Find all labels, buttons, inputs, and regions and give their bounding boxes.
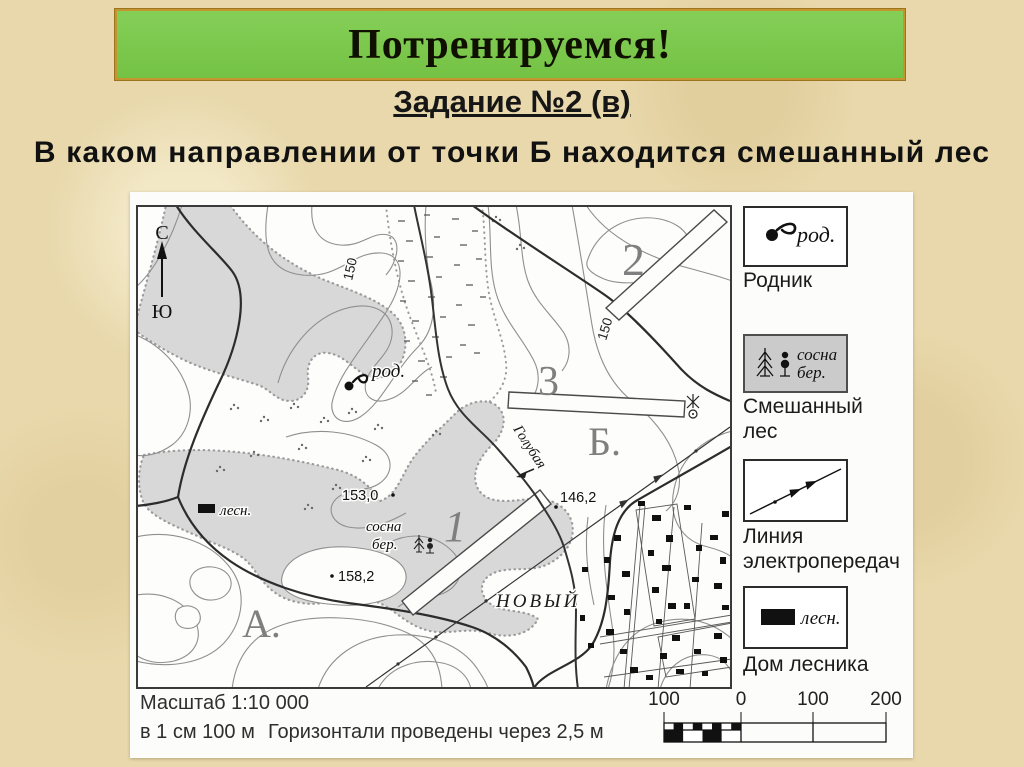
topographic-map: С Ю 150 150 род. 153,0 146,2 158,2 сосна… (136, 205, 732, 689)
scalebar-label-3: 200 (870, 689, 902, 710)
legend-mixed-forest-box: сосна бер. (743, 334, 848, 393)
scalebar-label-1: 0 (736, 689, 747, 710)
forester-house-symbol (198, 504, 215, 513)
compass-south-label: Ю (152, 301, 173, 323)
legend-forester-house-caption: Дом лесника (743, 652, 918, 677)
title-banner: Потренируемся! (115, 9, 905, 80)
marker-3: 3 (538, 359, 559, 405)
mixed-forest-legend-icon: сосна бер. (745, 336, 846, 391)
scalebar-label-0: 100 (648, 689, 680, 710)
legend-mixed-forest-caption: Смешанный лес (743, 394, 863, 444)
worksheet-panel: С Ю 150 150 род. 153,0 146,2 158,2 сосна… (130, 192, 913, 758)
birch-label: бер. (372, 537, 397, 553)
pine-label: сосна (366, 519, 401, 535)
legend-pine-label: сосна (797, 345, 837, 364)
legend-spring-caption: Родник (743, 268, 812, 293)
legend-birch-label: бер. (797, 363, 826, 382)
scale-cm-note: в 1 см 100 м (140, 721, 255, 744)
height-153-label: 153,0 (342, 488, 378, 504)
map-canvas: С Ю 150 150 род. 153,0 146,2 158,2 сосна… (136, 205, 732, 689)
marker-1: 1 (444, 502, 466, 551)
spot-153-dot (391, 493, 395, 497)
compass-north-label: С (155, 222, 168, 244)
legend-forester-house-box: лесн. (743, 586, 848, 649)
spring-legend-icon: род. (745, 208, 846, 265)
spring-symbol-label: род. (795, 222, 835, 247)
scalebar-label-2: 100 (797, 689, 829, 710)
legend-power-line-caption: Линия электропередач (743, 524, 918, 574)
legend-power-line-box (743, 459, 848, 522)
forester-map-label: лесн. (219, 503, 251, 519)
spot-146-dot (554, 505, 558, 509)
scalebar-left-section (664, 723, 741, 742)
task-question: В каком направлении от точки Б находится… (0, 136, 1024, 170)
village-name-label: НОВЫЙ (495, 589, 580, 612)
scale-title: Масштаб 1:10 000 (140, 692, 309, 715)
marker-b: Б. (588, 419, 621, 464)
task-subtitle: Задание №2 (в) (0, 84, 1024, 120)
marker-a: А. (242, 601, 281, 646)
spring-map-label: род. (370, 361, 405, 382)
legend-spring-box: род. (743, 206, 848, 267)
power-line-legend-icon (745, 461, 846, 520)
contour-interval-note: Горизонтали проведены через 2,5 м (268, 721, 604, 744)
slide: { "slide": { "title": "Потренируемся!", … (0, 0, 1024, 767)
height-146-label: 146,2 (560, 490, 596, 506)
height-158-label: 158,2 (338, 569, 374, 585)
spot-158-dot (330, 574, 334, 578)
forester-symbol-label: лесн. (800, 608, 841, 629)
scale-bar: 100 0 100 200 (628, 687, 913, 749)
marker-2: 2 (622, 234, 645, 285)
forester-house-legend-icon: лесн. (745, 588, 846, 647)
windmill-icon (687, 394, 699, 418)
page-title: Потренируемся! (348, 21, 672, 69)
